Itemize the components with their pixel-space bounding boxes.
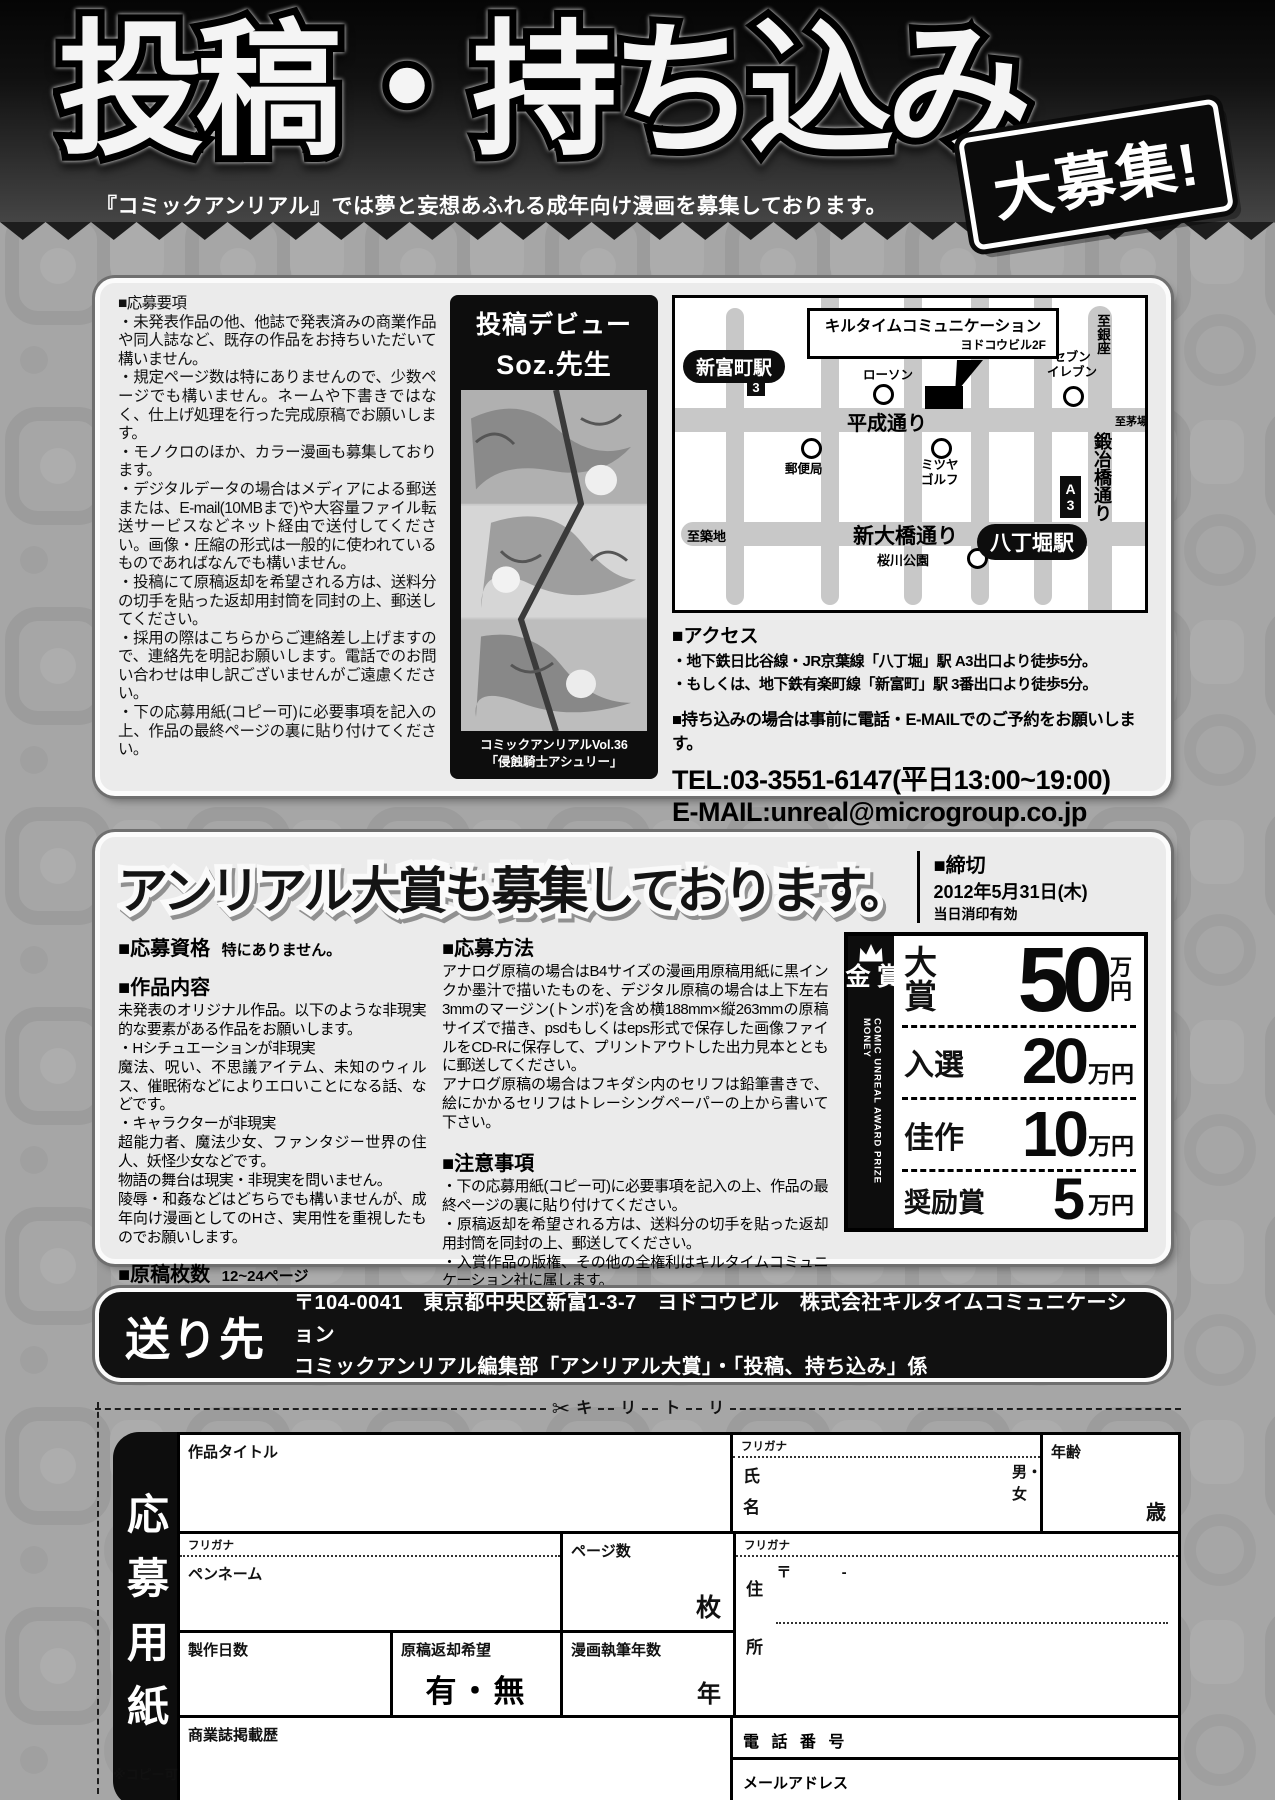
form-row-production: 製作日数 原稿返却希望 有・無 漫画執筆年数 年 (180, 1633, 733, 1715)
note-item: ・下の応募用紙(コピー可)に必要事項を記入の上、作品の最終ページの裏に貼り付けて… (442, 1178, 828, 1216)
award-title: アンリアル大賞も募集しております。 (118, 851, 907, 923)
page-count-unit: 枚 (696, 1588, 721, 1624)
content-line: ・キャラクターが非現実 (118, 1115, 426, 1134)
kiritori-char: リ (620, 1401, 636, 1417)
location-map: キルタイムコミュニケーション ヨドコウビル2F 新富町駅 3 八丁堀駅 A3 ロ… (672, 295, 1148, 613)
station-shintomicho: 新富町駅 (683, 350, 785, 383)
prize-unit: 万円 (1110, 956, 1134, 1004)
age-field: 年齢 歳 (1043, 1435, 1178, 1531)
prize-rank: 奨励賞 (904, 1181, 985, 1220)
exit-3-marker: 3 (747, 378, 765, 396)
seven-line2: イレブン (1047, 365, 1097, 379)
deadline-block: ■締切 2012年5月31日(木) 当日消印有効 (934, 849, 1088, 924)
post-office-marker (801, 438, 822, 459)
production-days-label: 製作日数 (180, 1633, 390, 1660)
postal-mark: 〒 (776, 1564, 791, 1581)
lawson-label: ローソン (863, 364, 913, 383)
dashed-line (686, 1408, 702, 1410)
sakuragawa-park-label: 桜川公園 (877, 550, 929, 569)
guidelines-heading: ■応募要項 (118, 295, 436, 314)
dashed-line (730, 1408, 1181, 1410)
notes-heading: ■注意事項 (442, 1147, 828, 1176)
debut-artist: Soz.先生 (496, 343, 612, 382)
prize-row-selected: 入選 20 万円 (902, 1028, 1136, 1100)
cut-line-left-edge (97, 1402, 99, 1794)
prize-amount: 10 (1022, 1106, 1085, 1164)
drawing-years-label: 漫画執筆年数 (563, 1633, 733, 1660)
prize-unit: 万円 (1088, 1186, 1134, 1220)
dashed-line (95, 1408, 546, 1410)
guideline-item: ・採用の際はこちらからご連絡差し上げますので、連絡先を明記お願いします。電話での… (118, 630, 436, 704)
shinohashi-street-label: 新大橋通り (853, 520, 958, 550)
prize-money-english: COMIC UNREAL AWARD PRIZE MONEY (861, 1018, 882, 1222)
prize-unit: 万円 (1088, 1055, 1134, 1089)
guideline-item: ・投稿にて原稿返却を希望される方は、送料分の切手を貼った返却用封筒を同封の上、郵… (118, 574, 436, 630)
publication-history-label: 商業誌掲載歴 (180, 1718, 730, 1745)
method-heading: ■応募方法 (442, 932, 828, 961)
award-method-column: ■応募方法 アナログ原稿の場合はB4サイズの漫画用原稿用紙に黒インクか墨汁で描い… (442, 932, 828, 1291)
to-ginza-label: 至銀座 (1092, 314, 1112, 355)
to-tsukiji-label: 至築地 (687, 526, 726, 545)
address-field: フリガナ 住所 〒 - (736, 1534, 1178, 1715)
scissors-icon: ✂ (552, 1398, 570, 1420)
content-line: 超能力者、魔法少女、ファンタジー世界の住人、妖怪少女などです。 (118, 1134, 426, 1172)
manuscript-return-label: 原稿返却希望 (393, 1633, 560, 1660)
note-item: ・原稿返却を希望される方は、送料分の切手を貼った返却用封筒を同封の上、郵送してく… (442, 1216, 828, 1254)
debut-showcase: 投稿デビュー Soz.先生 (450, 295, 658, 779)
deadline-date: 2012年5月31日(木) (934, 878, 1088, 904)
work-title-field: 作品タイトル (180, 1435, 733, 1531)
method-paragraph: アナログ原稿の場合はフキダシ内のセリフは鉛筆書きで、絵にかかるセリフはトレーシン… (442, 1076, 828, 1133)
manuscript-return-field: 原稿返却希望 有・無 (393, 1633, 563, 1715)
guideline-item: ・モノクロのほか、カラー漫画も募集しております。 (118, 444, 436, 481)
banner-subtitle: 『コミックアンリアル』では夢と妄想あふれる成年向け漫画を募集しております。 (96, 190, 887, 220)
guideline-item: ・未発表作品の他、他誌で発表済みの商業作品や同人誌など、既存の作品をお持ちいただ… (118, 314, 436, 370)
mitsuya-golf-label: ミツヤ ゴルフ (921, 458, 959, 488)
debut-caption-line2: 「侵蝕騎士アシュリー」 (485, 754, 622, 771)
application-form: 応募用紙 作品タイトル フリガナ 氏名 男・女 (113, 1432, 1181, 1800)
content-heading: ■作品内容 (118, 971, 426, 1000)
dashed-line (642, 1408, 658, 1410)
note-item: ・入賞作品の版権、その他の全権利はキルタイムコミュニケーション社に属します。 (442, 1254, 828, 1292)
content-line: 魔法、呪い、不思議アイテム、未知のウィルス、催眠術などによりエロいことになる話、… (118, 1059, 426, 1116)
drawing-years-unit: 年 (697, 1674, 721, 1709)
prize-rank: 佳作 (904, 1113, 964, 1157)
company-callout: キルタイムコミュニケーション ヨドコウビル2F (807, 308, 1059, 359)
prize-row-grand: 大賞 50 万円 (902, 936, 1136, 1028)
guideline-item: ・デジタルデータの場合はメディアによる郵送または、E-mail(10MBまで)や… (118, 481, 436, 574)
form-row-history: 商業誌掲載歴 電 話 番 号 メールアドレス (180, 1718, 1178, 1800)
debut-header: 投稿デビュー (476, 305, 632, 341)
heisei-street-label: 平成通り (847, 407, 927, 436)
penname-label: ペンネーム (180, 1557, 560, 1584)
company-building-marker (925, 386, 963, 409)
access-heading: ■アクセス (672, 621, 1148, 648)
lawson-marker (873, 384, 894, 405)
mitsuya-golf-marker (931, 438, 952, 459)
kajibashi-street-label: 鍛冶橋通り (1089, 432, 1115, 522)
email-field: メールアドレス (733, 1760, 1178, 1800)
flyer-page: 投稿・持ち込み 『コミックアンリアル』では夢と妄想あふれる成年向け漫画を募集して… (0, 0, 1275, 1800)
pages-heading: ■原稿枚数 12~24ページ (118, 1258, 426, 1287)
production-days-field: 製作日数 (180, 1633, 393, 1715)
award-requirements-column: ■応募資格 特にありません。 ■作品内容 未発表のオリジナル作品。以下のような非… (118, 932, 426, 1291)
header-divider (917, 851, 920, 923)
company-name: キルタイムコミュニケーション (814, 314, 1052, 336)
prize-money-label: 賞金 (840, 963, 903, 1012)
work-title-label: 作品タイトル (180, 1435, 730, 1462)
publication-history-field: 商業誌掲載歴 (180, 1718, 733, 1800)
age-label: 年齢 (1043, 1435, 1178, 1462)
station-hatchobori: 八丁堀駅 (977, 524, 1087, 560)
award-header: アンリアル大賞も募集しております。 ■締切 2012年5月31日(木) 当日消印… (114, 845, 1152, 932)
email-address: E-MAIL:unreal@microgroup.co.jp (672, 797, 1148, 828)
submission-panel: ■応募要項 ・未発表作品の他、他誌で発表済みの商業作品や同人誌など、既存の作品を… (95, 278, 1171, 796)
content-line: ・Hシチュエーションが非現実 (118, 1040, 426, 1059)
cut-line: ✂ キ リ ト リ (95, 1398, 1181, 1420)
guideline-item: ・下の応募用紙(コピー可)に必要事項を記入の上、作品の最終ページの裏に貼り付けて… (118, 704, 436, 760)
debut-caption-line1: コミックアンリアルVol.36 (480, 737, 628, 754)
prize-unit: 万円 (1088, 1127, 1134, 1161)
prize-amount: 20 (1022, 1033, 1085, 1091)
qualification-value: 特にありません。 (222, 942, 342, 959)
mailing-address-bar: 送り先 〒104-0041 東京都中央区新富1-3-7 ヨドコウビル 株式会社キ… (95, 1288, 1171, 1382)
qualification-heading: ■応募資格 特にありません。 (118, 932, 426, 961)
content-line: 未発表のオリジナル作品。以下のような非現実的な要素がある作品をお願いします。 (118, 1002, 426, 1040)
map-access-column: キルタイムコミュニケーション ヨドコウビル2F 新富町駅 3 八丁堀駅 A3 ロ… (672, 295, 1148, 779)
crown-icon (857, 942, 885, 963)
seven-eleven-marker (1063, 386, 1084, 407)
post-office-label: 郵便局 (785, 458, 823, 477)
exit-a3-marker: A3 (1060, 476, 1081, 518)
deadline-heading: ■締切 (934, 849, 1088, 878)
dashed-line (598, 1408, 614, 1410)
prize-amount: 50 (1018, 939, 1106, 1022)
gender-options: 男・女 (1012, 1462, 1030, 1527)
deadline-note: 当日消印有効 (934, 904, 1088, 924)
pages-heading-text: ■原稿枚数 (118, 1264, 210, 1286)
phone-label: 電 話 番 号 (733, 1718, 1178, 1752)
address-guide-line (776, 1622, 1168, 1624)
mitsuya-line1: ミツヤ (921, 458, 959, 472)
mailing-address-line2: コミックアンリアル編集部「アンリアル大賞」・「投稿、持ち込み」係 (294, 1351, 1141, 1383)
prize-rank: 入選 (904, 1040, 964, 1084)
furigana-label: フリガナ (733, 1435, 1040, 1458)
drawing-years-field: 漫画執筆年数 年 (563, 1633, 733, 1715)
prize-amount: 5 (1053, 1174, 1085, 1226)
age-unit: 歳 (1146, 1496, 1166, 1525)
kiritori-char: キ (576, 1401, 592, 1417)
name-field: フリガナ 氏名 男・女 (733, 1435, 1043, 1531)
access-line: ・地下鉄日比谷線・JR京葉線「八丁堀」駅 A3出口より徒歩5分。 (672, 650, 1148, 671)
address-label: 住所 (746, 1561, 766, 1711)
mitsuya-line2: ゴルフ (921, 473, 959, 487)
manga-sample-image (461, 390, 647, 731)
form-row-penname: フリガナ ペンネーム ページ数 枚 (180, 1534, 733, 1633)
mailing-address-lines: 〒104-0041 東京都中央区新富1-3-7 ヨドコウビル 株式会社キルタイム… (294, 1287, 1141, 1383)
method-paragraph: アナログ原稿の場合はB4サイズの漫画用原稿用紙に黒インクか墨汁で描いたものを、デ… (442, 963, 828, 1076)
award-panel: アンリアル大賞も募集しております。 ■締切 2012年5月31日(木) 当日消印… (95, 832, 1171, 1264)
form-sidebar: 応募用紙 (113, 1432, 177, 1800)
prize-row-honorable: 佳作 10 万円 (902, 1100, 1136, 1172)
to-kayabacho-label: 至茅場町 (1115, 413, 1148, 429)
pages-value: 12~24ページ (222, 1268, 309, 1285)
phone-number: TEL:03-3551-6147(平日13:00~19:00) (672, 758, 1148, 797)
content-line: 陵辱・和姦などはどちらでも構いませんが、成年向け漫画としてのHさ、実用性を重視し… (118, 1191, 426, 1248)
furigana-label: フリガナ (736, 1534, 1178, 1557)
prize-rank: 大賞 (904, 946, 940, 1015)
penname-field: フリガナ ペンネーム (180, 1534, 563, 1630)
page-count-label: ページ数 (563, 1534, 733, 1561)
guidelines-column: ■応募要項 ・未発表作品の他、他誌で発表済みの商業作品や同人誌など、既存の作品を… (118, 295, 436, 779)
email-label: メールアドレス (733, 1760, 1178, 1793)
mailing-address-line1: 〒104-0041 東京都中央区新富1-3-7 ヨドコウビル 株式会社キルタイム… (294, 1287, 1141, 1351)
prize-column: 賞金 COMIC UNREAL AWARD PRIZE MONEY 大賞 50 … (844, 932, 1148, 1291)
form-sidebar-label: 応募用紙 (115, 1492, 176, 1748)
mailing-address-label: 送り先 (125, 1303, 266, 1368)
qualification-heading-text: ■応募資格 (118, 938, 210, 960)
page-count-field: ページ数 枚 (563, 1534, 733, 1630)
form-row-title: 作品タイトル フリガナ 氏名 男・女 年齢 歳 (180, 1435, 1178, 1534)
content-line: 物語の舞台は現実・非現実を問いません。 (118, 1172, 426, 1191)
kiritori-char: ト (664, 1401, 680, 1417)
company-building: ヨドコウビル2F (814, 336, 1052, 353)
reservation-note: ■持ち込みの場合は事前に電話・E-MAILでのご予約をお願いします。 (672, 706, 1148, 754)
phone-field: 電 話 番 号 (733, 1718, 1178, 1760)
prize-table: 賞金 COMIC UNREAL AWARD PRIZE MONEY 大賞 50 … (844, 932, 1148, 1232)
kiritori-char: リ (708, 1401, 724, 1417)
access-line: ・もしくは、地下鉄有楽町線「新富町」駅 3番出口より徒歩5分。 (672, 673, 1148, 694)
furigana-label: フリガナ (180, 1534, 560, 1557)
form-rows-middle: フリガナ ペンネーム ページ数 枚 製作日数 (180, 1534, 1178, 1718)
prize-row-encouragement: 奨励賞 5 万円 (902, 1172, 1136, 1228)
prize-money-bar: 賞金 COMIC UNREAL AWARD PRIZE MONEY (848, 936, 894, 1228)
name-label: 氏名 (743, 1462, 763, 1527)
return-options: 有・無 (393, 1666, 560, 1711)
copy-allowed-note: ※コピー可 (113, 1764, 178, 1783)
postal-dash: - (842, 1564, 847, 1581)
form-table: 作品タイトル フリガナ 氏名 男・女 年齢 歳 (177, 1432, 1181, 1800)
guideline-item: ・規定ページ数は特にありませんので、少数ページでも構いません。ネームや下書きでは… (118, 369, 436, 443)
